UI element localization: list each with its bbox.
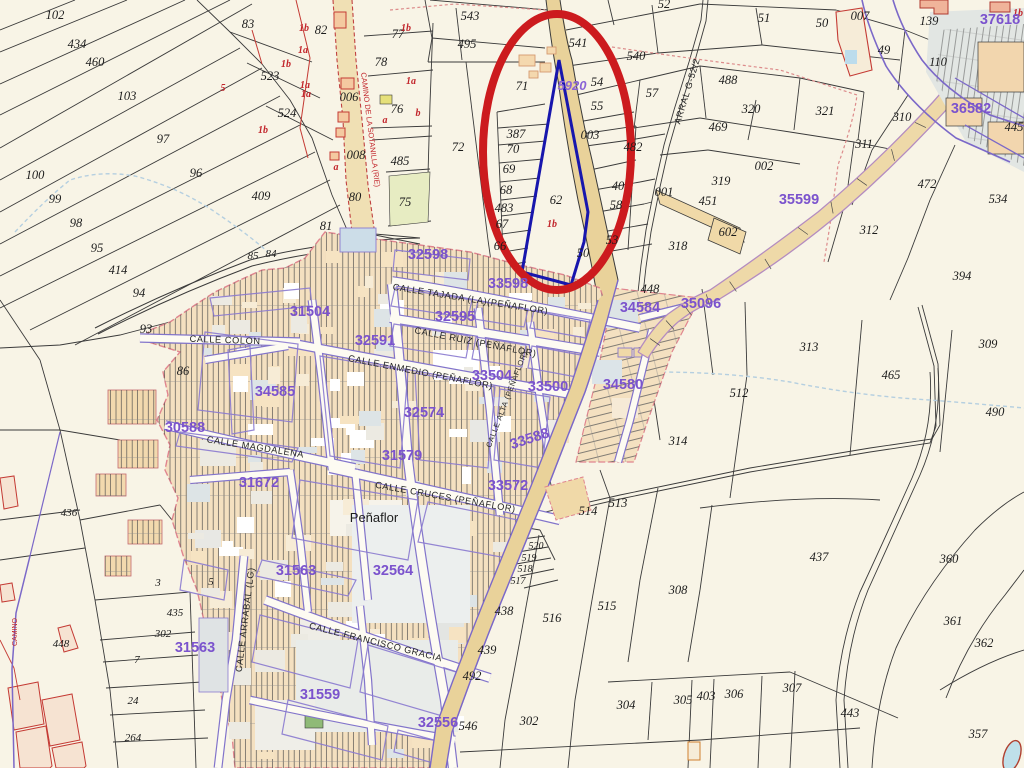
svg-text:002: 002 (755, 159, 774, 173)
svg-text:3: 3 (154, 577, 161, 589)
svg-text:55: 55 (591, 99, 604, 113)
svg-text:a: a (334, 162, 339, 173)
svg-text:519: 519 (522, 553, 537, 564)
svg-text:33572: 33572 (488, 478, 528, 494)
svg-text:35599: 35599 (779, 192, 819, 208)
svg-text:31504: 31504 (290, 304, 330, 320)
svg-text:311: 311 (854, 137, 873, 151)
svg-text:83: 83 (242, 17, 255, 31)
svg-text:31559: 31559 (300, 687, 340, 703)
svg-text:514: 514 (579, 504, 598, 518)
svg-text:414: 414 (109, 263, 128, 277)
svg-text:Peñaflor: Peñaflor (350, 510, 399, 525)
svg-text:517: 517 (511, 576, 527, 587)
svg-text:460: 460 (86, 55, 106, 69)
svg-text:437: 437 (810, 550, 830, 564)
svg-text:472: 472 (918, 177, 937, 191)
svg-text:68: 68 (500, 183, 513, 197)
svg-text:33598: 33598 (488, 276, 528, 292)
svg-text:5: 5 (221, 83, 226, 94)
svg-text:36582: 36582 (951, 101, 991, 117)
svg-text:139: 139 (920, 14, 940, 28)
svg-text:602: 602 (719, 225, 738, 239)
svg-text:314: 314 (668, 434, 688, 448)
svg-text:102: 102 (46, 8, 65, 22)
svg-text:78: 78 (375, 55, 388, 69)
svg-text:93: 93 (140, 322, 153, 336)
svg-text:434: 434 (68, 37, 87, 51)
svg-text:32574: 32574 (404, 405, 444, 421)
svg-text:312: 312 (859, 223, 879, 237)
svg-text:66: 66 (494, 239, 507, 253)
svg-text:53: 53 (606, 233, 619, 247)
svg-text:32595: 32595 (435, 309, 475, 325)
svg-text:543: 543 (461, 9, 480, 23)
svg-text:100: 100 (26, 168, 46, 182)
svg-text:435: 435 (167, 607, 184, 619)
svg-text:448: 448 (53, 638, 70, 650)
svg-text:1b: 1b (547, 219, 557, 230)
svg-text:1b: 1b (401, 23, 411, 34)
svg-text:360: 360 (939, 552, 960, 566)
svg-text:34585: 34585 (255, 384, 295, 400)
svg-text:362: 362 (974, 636, 994, 650)
svg-text:35096: 35096 (681, 296, 721, 312)
svg-text:32598: 32598 (408, 247, 448, 263)
svg-text:62: 62 (550, 193, 563, 207)
svg-text:49: 49 (878, 43, 891, 57)
svg-text:103: 103 (118, 89, 137, 103)
svg-text:520: 520 (529, 541, 544, 552)
svg-text:394: 394 (952, 269, 972, 283)
svg-text:69: 69 (503, 162, 516, 176)
svg-text:85: 85 (248, 250, 260, 262)
svg-text:CAMINO: CAMINO (12, 617, 19, 646)
svg-text:67: 67 (496, 217, 509, 231)
svg-text:37618: 37618 (980, 12, 1020, 28)
svg-text:483: 483 (495, 201, 514, 215)
svg-text:524: 524 (278, 106, 297, 120)
svg-text:70: 70 (507, 142, 520, 156)
svg-text:1b: 1b (258, 125, 268, 136)
svg-text:302: 302 (154, 628, 172, 640)
svg-text:310: 310 (892, 110, 913, 124)
svg-text:512: 512 (730, 386, 749, 400)
svg-text:51: 51 (758, 11, 771, 25)
svg-text:006: 006 (340, 90, 360, 104)
svg-text:24: 24 (128, 695, 140, 707)
svg-text:518: 518 (518, 564, 533, 575)
svg-text:72: 72 (452, 140, 465, 154)
svg-text:94: 94 (133, 286, 146, 300)
svg-text:96: 96 (190, 166, 203, 180)
svg-text:5920: 5920 (558, 78, 588, 93)
svg-text:308: 308 (668, 583, 689, 597)
svg-text:439: 439 (478, 643, 498, 657)
svg-text:465: 465 (882, 368, 901, 382)
svg-text:50: 50 (816, 16, 829, 30)
svg-text:95: 95 (91, 241, 104, 255)
svg-text:1b: 1b (281, 59, 291, 70)
svg-text:30588: 30588 (165, 420, 205, 436)
svg-text:81: 81 (320, 219, 333, 233)
svg-text:1b: 1b (299, 23, 309, 34)
svg-text:34580: 34580 (603, 377, 643, 393)
svg-text:40: 40 (612, 179, 625, 193)
svg-text:319: 319 (711, 174, 732, 188)
svg-text:541: 541 (569, 36, 588, 50)
svg-text:403: 403 (697, 689, 716, 703)
svg-text:1a: 1a (298, 45, 308, 56)
svg-text:b: b (416, 108, 421, 119)
svg-text:76: 76 (391, 102, 404, 116)
svg-text:5: 5 (208, 576, 214, 588)
svg-text:305: 305 (673, 693, 693, 707)
svg-text:469: 469 (709, 120, 729, 134)
svg-text:387: 387 (506, 127, 527, 141)
svg-text:534: 534 (989, 192, 1008, 206)
svg-text:513: 513 (609, 496, 628, 510)
svg-text:31579: 31579 (382, 448, 422, 464)
svg-text:50: 50 (577, 246, 590, 260)
svg-text:58: 58 (610, 198, 623, 212)
svg-text:97: 97 (157, 132, 170, 146)
svg-text:99: 99 (49, 192, 62, 206)
svg-text:1a: 1a (406, 76, 416, 87)
svg-text:1a: 1a (301, 89, 311, 100)
svg-text:75: 75 (399, 195, 412, 209)
svg-text:482: 482 (624, 140, 643, 154)
svg-text:264: 264 (125, 732, 142, 744)
svg-text:361: 361 (943, 614, 963, 628)
svg-text:71: 71 (516, 79, 529, 93)
svg-text:485: 485 (391, 154, 410, 168)
svg-text:516: 516 (543, 611, 563, 625)
svg-text:32556: 32556 (418, 715, 458, 731)
svg-text:445: 445 (1005, 120, 1024, 134)
svg-text:546: 546 (459, 719, 479, 733)
svg-text:523: 523 (261, 69, 280, 83)
svg-text:320: 320 (741, 102, 762, 116)
svg-text:302: 302 (519, 714, 539, 728)
svg-text:33500: 33500 (528, 379, 568, 395)
svg-text:313: 313 (799, 340, 819, 354)
svg-text:54: 54 (591, 75, 604, 89)
svg-text:82: 82 (315, 23, 328, 37)
svg-text:318: 318 (668, 239, 689, 253)
svg-text:31563: 31563 (175, 640, 215, 656)
svg-text:307: 307 (782, 681, 803, 695)
svg-text:001: 001 (655, 185, 674, 199)
svg-text:492: 492 (463, 669, 482, 683)
svg-text:003: 003 (581, 128, 600, 142)
svg-text:31563: 31563 (276, 563, 316, 579)
svg-text:443: 443 (841, 706, 860, 720)
svg-text:31672: 31672 (239, 475, 279, 491)
svg-text:007: 007 (851, 9, 871, 23)
svg-text:98: 98 (70, 216, 83, 230)
svg-text:84: 84 (266, 248, 278, 260)
svg-text:321: 321 (815, 104, 835, 118)
svg-text:306: 306 (724, 687, 745, 701)
svg-text:52: 52 (658, 0, 671, 11)
svg-text:438: 438 (495, 604, 515, 618)
svg-text:540: 540 (627, 49, 647, 63)
svg-text:309: 309 (978, 337, 999, 351)
svg-text:008: 008 (347, 148, 367, 162)
svg-text:86: 86 (177, 364, 190, 378)
svg-text:304: 304 (616, 698, 636, 712)
svg-text:436: 436 (61, 507, 78, 519)
svg-text:451: 451 (699, 194, 718, 208)
svg-text:357: 357 (968, 727, 989, 741)
svg-text:409: 409 (252, 189, 272, 203)
svg-text:110: 110 (929, 55, 948, 69)
svg-text:32591: 32591 (355, 333, 395, 349)
svg-text:495: 495 (458, 37, 477, 51)
svg-text:515: 515 (598, 599, 617, 613)
svg-text:34584: 34584 (620, 300, 660, 316)
svg-text:448: 448 (641, 282, 661, 296)
svg-text:7: 7 (134, 654, 140, 666)
svg-text:a: a (383, 115, 388, 126)
svg-text:57: 57 (646, 86, 659, 100)
svg-text:490: 490 (986, 405, 1006, 419)
svg-text:32564: 32564 (373, 563, 413, 579)
svg-text:488: 488 (719, 73, 739, 87)
svg-text:80: 80 (349, 190, 362, 204)
